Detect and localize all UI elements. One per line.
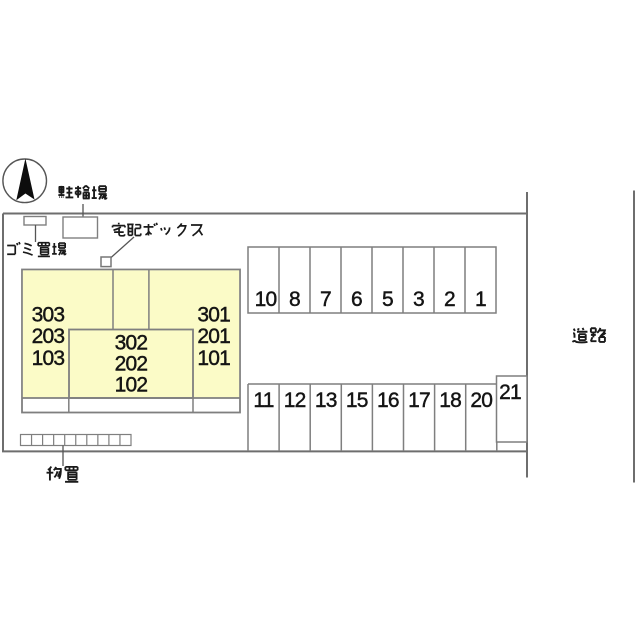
svg-text:302: 302 xyxy=(115,332,148,355)
svg-text:101: 101 xyxy=(197,347,230,370)
svg-text:202: 202 xyxy=(115,353,148,376)
svg-text:10: 10 xyxy=(255,288,277,311)
svg-text:13: 13 xyxy=(315,389,337,412)
svg-text:12: 12 xyxy=(284,389,306,412)
svg-text:203: 203 xyxy=(32,325,65,348)
svg-text:11: 11 xyxy=(253,389,273,412)
svg-text:303: 303 xyxy=(32,303,65,326)
svg-text:2: 2 xyxy=(444,288,455,311)
svg-text:21: 21 xyxy=(499,381,521,404)
svg-text:17: 17 xyxy=(408,389,430,412)
svg-text:103: 103 xyxy=(32,347,65,370)
svg-text:1: 1 xyxy=(475,288,486,311)
svg-text:18: 18 xyxy=(439,389,461,412)
svg-text:102: 102 xyxy=(115,374,148,397)
svg-text:8: 8 xyxy=(289,288,300,311)
svg-text:6: 6 xyxy=(351,288,362,311)
svg-text:3: 3 xyxy=(413,288,424,311)
svg-text:20: 20 xyxy=(470,389,492,412)
svg-text:15: 15 xyxy=(346,389,368,412)
svg-text:5: 5 xyxy=(382,288,393,311)
svg-text:16: 16 xyxy=(377,389,399,412)
svg-text:201: 201 xyxy=(197,325,230,348)
svg-text:301: 301 xyxy=(197,303,230,326)
svg-text:7: 7 xyxy=(320,288,331,311)
